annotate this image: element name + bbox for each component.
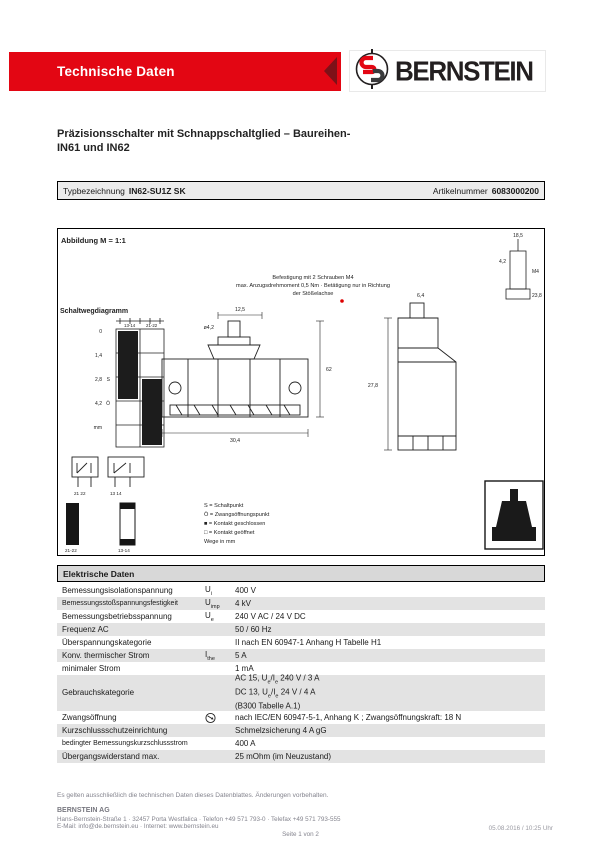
side-view-dimensions — [384, 318, 392, 450]
footer-address: Hans-Bernstein-Straße 1 · 32457 Porta We… — [57, 816, 341, 823]
footer-company: BERNSTEIN AG — [57, 807, 110, 814]
row-label: Übergangswiderstand max. — [62, 752, 202, 761]
row-symbol: Ithe — [205, 650, 215, 662]
row-label: Zwangsöffnung — [62, 713, 202, 722]
row-value: 240 V AC / 24 V DC — [235, 611, 306, 622]
product-title-line1: Präzisionsschalter mit Schnappschaltglie… — [57, 127, 350, 141]
dim-label: M4 — [532, 269, 539, 275]
row-label: Kurzschlussschutzeinrichtung — [62, 726, 202, 735]
grid-header: 21-22 — [146, 323, 158, 328]
row-symbol: Ue — [205, 611, 214, 623]
article-label: Artikelnummer — [433, 186, 488, 196]
drawing-note-line3: der Stößelachse — [293, 291, 334, 297]
table-row: Zwangsöffnung nach IEC/EN 60947-5-1, Anh… — [57, 711, 545, 724]
article-value: 6083000200 — [492, 186, 539, 196]
article-number: Artikelnummer6083000200 — [433, 186, 539, 196]
row-value: 25 mOhm (im Neuzustand) — [235, 751, 331, 762]
electrical-table-rows: BemessungsisolationspannungUi400 VBemess… — [57, 584, 545, 763]
electrical-data-header: Elektrische Daten — [57, 565, 545, 582]
dim-label: 12,5 — [235, 307, 245, 313]
datasheet-page: Technische Daten BERNSTEIN Präzisionssch… — [0, 0, 601, 850]
row-value: 400 V — [235, 585, 256, 596]
front-view-drawing — [162, 321, 308, 417]
type-value: IN62-SU1Z SK — [129, 186, 186, 196]
banner-chevron-icon — [324, 57, 337, 85]
drawing-note-line1: Befestigung mit 2 Schrauben M4 — [272, 275, 353, 281]
footer-contact: E-Mail: info@de.bernstein.eu · Internet:… — [57, 823, 218, 830]
footer-page-number: Seite 1 von 2 — [0, 831, 601, 838]
row-value: nach IEC/EN 60947-5-1, Anhang K ; Zwangs… — [235, 712, 461, 723]
detail-view-drawing — [506, 239, 530, 299]
row-label: Bemessungsisolationspannung — [62, 586, 202, 595]
scale-label: 2,8 — [95, 377, 102, 383]
bernstein-emblem-icon — [352, 49, 392, 94]
row-label: minimaler Strom — [62, 664, 202, 673]
dim-label: 23,8 — [532, 293, 542, 299]
row-label: Gebrauchskategorie — [62, 689, 202, 698]
row-symbol: Ui — [205, 585, 212, 597]
type-label: Typbezeichnung — [63, 186, 125, 196]
footer-generated-timestamp: 05.08.2016 / 10:25 Uhr — [445, 825, 553, 832]
dim-label: 27,8 — [368, 383, 378, 389]
product-title: Präzisionsschalter mit Schnappschaltglie… — [57, 127, 350, 155]
legend-line: Wege in mm — [204, 539, 236, 545]
table-row: KurzschlussschutzeinrichtungSchmelzsiche… — [57, 724, 545, 737]
table-row: BemessungsbetriebsspannungUe240 V AC / 2… — [57, 610, 545, 623]
table-row: BemessungsisolationspannungUi400 V — [57, 584, 545, 597]
drawing-note-line2: max. Anzugsdrehmoment 0,5 Nm · Betätigun… — [236, 283, 390, 289]
scale-label: mm — [94, 425, 102, 431]
row-value: II nach EN 60947-1 Anhang H Tabelle H1 — [235, 637, 381, 648]
closed-state-bar — [66, 503, 79, 545]
drawing-caption: Abbildung M = 1:1 — [61, 236, 126, 245]
contact-closed-band — [118, 331, 138, 399]
table-row: Konv. thermischer StromIthe5 A — [57, 649, 545, 662]
contact-label: 21 22 — [74, 491, 86, 496]
row-label: Überspannungskategorie — [62, 638, 202, 647]
scale-label: 4,2 — [95, 401, 102, 407]
scale-label: 1,4 — [95, 353, 102, 359]
contact-label: 13 14 — [110, 491, 122, 496]
legend-line: S = Schaltpunkt — [204, 503, 244, 509]
row-value: 1 mA — [235, 663, 254, 674]
grid-header: 13-14 — [124, 323, 136, 328]
brand-logo: BERNSTEIN — [349, 50, 546, 92]
opening-point-mark: Ö — [106, 400, 110, 407]
contact-closed-band — [142, 379, 162, 445]
open-state-bar — [120, 503, 135, 545]
switch-point-mark: S — [107, 377, 111, 383]
table-row: GebrauchskategorieAC 15, Ue/Ie 240 V / 3… — [57, 675, 545, 711]
dim-label: 4,2 — [499, 259, 506, 265]
legend-line: □ = Kontakt geöffnet — [204, 530, 255, 536]
row-value: Schmelzsicherung 4 A gG — [235, 725, 327, 736]
scale-label: 0 — [99, 329, 102, 335]
header-banner: Technische Daten — [9, 52, 341, 91]
travel-diagram-label: Schaltwegdiagramm — [60, 308, 128, 315]
electrical-data-title: Elektrische Daten — [58, 569, 134, 579]
table-row: bedingter Bemessungskurzschlussstrom400 … — [57, 737, 545, 750]
dim-label: 6,4 — [417, 293, 424, 299]
row-value: AC 15, Ue/Ie 240 V / 3 ADC 13, Ue/Ie 24 … — [235, 674, 319, 713]
dim-label: ø4,2 — [204, 325, 214, 331]
table-row: Frequenz AC50 / 60 Hz — [57, 623, 545, 636]
bar-label: 21-22 — [65, 548, 77, 553]
side-view-drawing — [398, 303, 456, 450]
legend-line: Ö = Zwangsöffnungspunkt — [204, 511, 270, 518]
row-label: Bemessungsstoßspannungsfestigkeit — [62, 599, 202, 608]
technical-drawing: Abbildung M = 1:1 Befestigung mit 2 Schr… — [58, 229, 544, 555]
actuation-point-marker — [340, 299, 344, 303]
type-designation: TypbezeichnungIN62-SU1Z SK — [63, 186, 186, 196]
bar-label: 13-14 — [118, 548, 130, 553]
dim-label: 62 — [326, 367, 332, 373]
table-row: Übergangswiderstand max.25 mOhm (im Neuz… — [57, 750, 545, 763]
row-symbol: Uimp — [205, 598, 220, 610]
contact-symbol-diagrams — [72, 457, 144, 487]
dim-label: 30,4 — [230, 438, 240, 444]
table-row: BemessungsstoßspannungsfestigkeitUimp4 k… — [57, 597, 545, 610]
type-article-row: TypbezeichnungIN62-SU1Z SK Artikelnummer… — [57, 181, 545, 200]
row-label: bedingter Bemessungskurzschlussstrom — [62, 739, 202, 748]
legend-line: ■ = Kontakt geschlossen — [204, 521, 265, 527]
brand-wordmark: BERNSTEIN — [395, 55, 533, 88]
row-symbol — [205, 712, 216, 723]
banner-title: Technische Daten — [9, 64, 175, 79]
front-view-dimensions — [162, 312, 324, 437]
technical-drawing-panel: Abbildung M = 1:1 Befestigung mit 2 Schr… — [57, 228, 545, 556]
product-title-line2: IN61 und IN62 — [57, 141, 350, 155]
row-label: Bemessungsbetriebsspannung — [62, 612, 202, 621]
row-label: Konv. thermischer Strom — [62, 651, 202, 660]
row-label: Frequenz AC — [62, 625, 202, 634]
footer-note: Es gelten ausschließlich die technischen… — [57, 792, 328, 799]
positive-opening-icon — [205, 712, 216, 723]
product-photo-thumbnail — [485, 481, 543, 549]
row-value: 5 A — [235, 650, 247, 661]
row-value: 4 kV — [235, 598, 251, 609]
table-row: ÜberspannungskategorieII nach EN 60947-1… — [57, 636, 545, 649]
row-value: 400 A — [235, 738, 255, 749]
row-value: 50 / 60 Hz — [235, 624, 271, 635]
dim-label: 18,5 — [513, 233, 523, 239]
